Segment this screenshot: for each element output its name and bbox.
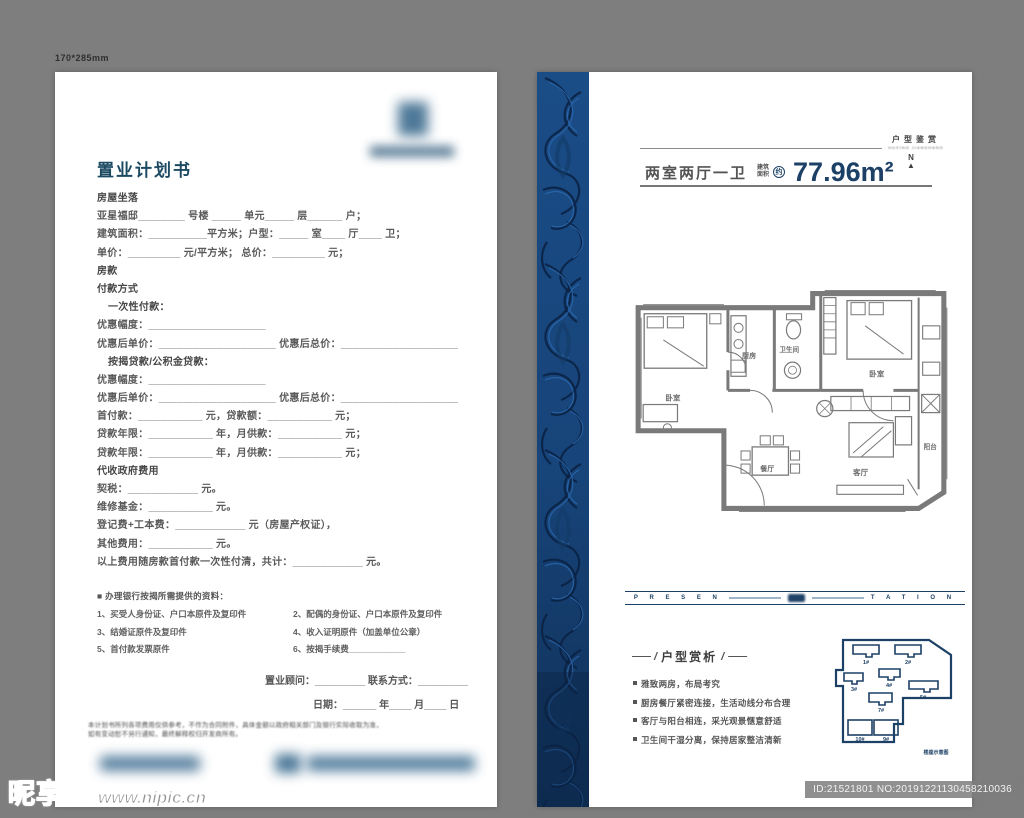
footer-text-blurred bbox=[307, 756, 475, 771]
doc-item: 3、结婚证原件及复印件 bbox=[97, 626, 293, 638]
unit-layout-text: 两室两厅一卫 bbox=[645, 162, 747, 183]
form-line: 付款方式 bbox=[97, 283, 477, 301]
page-right-floorplan: 户型鉴赏 HUXING JIANSHANG 两室两厅一卫 建筑 面积 约 77.… bbox=[537, 72, 972, 807]
date-line: 日期：______ 年____ 月____ 日 bbox=[313, 696, 459, 711]
keyplan-caption: 楼座示意图 bbox=[923, 749, 948, 756]
form-line: 其他费用：___________ 元。 bbox=[97, 538, 477, 556]
form-line: 契税：____________ 元。 bbox=[97, 483, 477, 501]
keyplan-unit-label: 9# bbox=[883, 737, 889, 743]
form-line: 登记费+工本费：____________ 元（房屋产权证）， bbox=[97, 519, 477, 537]
damask-pattern-icon bbox=[537, 72, 589, 807]
keyplan-drawing-icon: 1# 2# 3# 4# 5# 7# 10# 9# 楼座示意图 bbox=[831, 628, 969, 762]
bullet-text: 雅致两房，布局考究 bbox=[641, 678, 720, 690]
form-line: 代收政府费用 bbox=[97, 465, 477, 483]
approx-circle-icon: 约 bbox=[773, 166, 785, 178]
form-line: 单价：_________ 元/平方米； 总价：_________ 元； bbox=[97, 247, 477, 265]
form-line: 首付款：___________ 元，贷款额：___________ 元； bbox=[97, 410, 477, 428]
form-line: 一次性付款： bbox=[97, 301, 477, 319]
area-label-top: 建筑 bbox=[757, 165, 769, 172]
room-label-bedroom-right: 卧室 bbox=[869, 368, 885, 378]
analysis-title: 户型赏析 bbox=[661, 648, 717, 665]
watermark-id-badge: ID:21521801 NO:20191221130458210036 bbox=[805, 781, 1020, 798]
bullet-text: 厨房餐厅紧密连接，生活动线分布合理 bbox=[641, 697, 791, 709]
brand-name-blurred bbox=[370, 146, 454, 157]
form-line: 优惠后单价：____________________ 优惠后总价：_______… bbox=[97, 338, 477, 356]
area-label: 建筑 面积 bbox=[757, 165, 769, 179]
page-title: 置业计划书 bbox=[97, 156, 192, 181]
presentation-band: P R E S E N T A T I O N bbox=[625, 591, 965, 605]
room-label-bedroom-left: 卧室 bbox=[665, 392, 681, 402]
room-label-kitchen: 厨房 bbox=[742, 351, 756, 360]
keyplan-unit-label: 10# bbox=[855, 737, 864, 743]
form-line: 维修基金：___________ 元。 bbox=[97, 501, 477, 519]
bullet-square-icon bbox=[633, 737, 637, 741]
area-label-bottom: 面积 bbox=[757, 172, 769, 179]
form-line: 亚星福邸________ 号楼 _____ 单元_____ 层______ 户； bbox=[97, 210, 477, 228]
area-value: 77.96m² bbox=[793, 157, 894, 188]
form-line: 优惠幅度：____________________ bbox=[97, 374, 477, 392]
size-label: 170*285mm bbox=[55, 53, 109, 63]
floorplan-drawing-icon: 卧室 厨房 卫生间 卧室 餐厅 客厅 阳台 bbox=[623, 277, 961, 525]
disclaimer-line-1: 本计划书所列各项费用仅供参考，不作为合同附件，具体金额以政府相关部门及银行实际收… bbox=[88, 721, 418, 730]
analysis-slash-right: / bbox=[721, 651, 724, 663]
disclaimer-line-2: 如有变动恕不另行通知，最终解释权归开发商所有。 bbox=[88, 730, 418, 739]
analysis-bullet: 客厅与阳台相连，采光观景惬意舒适 bbox=[633, 715, 843, 727]
form-line: 按揭贷款/公积金贷款： bbox=[97, 356, 477, 374]
watermark-site-url: www.nipic.cn bbox=[98, 788, 206, 811]
room-label-dining: 餐厅 bbox=[759, 464, 774, 473]
consultant-line: 置业顾问：_________ 联系方式：_________ bbox=[265, 672, 468, 687]
site-keyplan: 1# 2# 3# 4# 5# 7# 10# 9# 楼座示意图 bbox=[831, 628, 969, 762]
bullet-square-icon bbox=[633, 700, 637, 704]
form-line: 以上费用随房款首付款一次性付清，共计：____________ 元。 bbox=[97, 556, 477, 574]
bullet-square-icon bbox=[633, 718, 637, 722]
bullet-text: 卫生间干湿分离，保持居家整洁清新 bbox=[641, 734, 782, 746]
analysis-slash-left: / bbox=[654, 651, 657, 663]
keyplan-unit-label: 4# bbox=[886, 683, 892, 689]
bullet-square-icon bbox=[633, 681, 637, 685]
compass-north-icon: N ▲ bbox=[903, 154, 919, 170]
room-label-bath: 卫生间 bbox=[779, 345, 799, 354]
analysis-bullet: 卫生间干湿分离，保持居家整洁清新 bbox=[633, 734, 843, 746]
doc-item: 4、收入证明原件（加盖单位公章） bbox=[293, 626, 477, 638]
header-rule-top bbox=[640, 148, 882, 149]
keyplan-unit-label: 1# bbox=[863, 660, 869, 666]
doc-item: 5、首付款发票原件 bbox=[97, 643, 293, 655]
keyplan-unit-label: 3# bbox=[851, 687, 857, 693]
analysis-bullet: 厨房餐厅紧密连接，生活动线分布合理 bbox=[633, 697, 843, 709]
compass-arrow: ▲ bbox=[903, 162, 919, 170]
room-label-balcony: 阳台 bbox=[924, 442, 938, 451]
corner-subtitle: HUXING JIANSHANG bbox=[882, 145, 950, 150]
docs-list: 1、买受人身份证、户口本原件及复印件2、配偶的身份证、户口本原件及复印件3、结婚… bbox=[97, 608, 477, 655]
corner-title: 户型鉴赏 bbox=[882, 134, 950, 145]
damask-strip-decoration bbox=[537, 72, 589, 807]
watermark-site: 昵享网 www.nipic.cn bbox=[8, 772, 206, 811]
doc-item: 1、买受人身份证、户口本原件及复印件 bbox=[97, 608, 293, 620]
disclaimer-text: 本计划书所列各项费用仅供参考，不作为合同附件，具体金额以政府相关部门及银行实际收… bbox=[88, 721, 418, 739]
footer-logo-blurred bbox=[275, 754, 301, 773]
floorplan: 卧室 厨房 卫生间 卧室 餐厅 客厅 阳台 bbox=[623, 277, 961, 525]
analysis-bullets: 雅致两房，布局考究厨房餐厅紧密连接，生活动线分布合理客厅与阳台相连，采光观景惬意… bbox=[633, 678, 843, 752]
page-left-purchase-plan: 置业计划书 房屋坐落亚星福邸________ 号楼 _____ 单元_____ … bbox=[55, 72, 497, 807]
form-line: 房屋坐落 bbox=[97, 192, 477, 210]
header-rule-bottom bbox=[640, 185, 932, 187]
corner-label: 户型鉴赏 HUXING JIANSHANG bbox=[882, 134, 950, 150]
docs-title: ■ 办理银行按揭所需提供的资料： bbox=[97, 590, 228, 602]
form-line: 贷款年限：___________ 年，月供款：___________ 元； bbox=[97, 447, 477, 465]
analysis-dash-right: —— bbox=[728, 651, 746, 662]
band-line-left bbox=[729, 597, 781, 599]
keyplan-unit-label: 7# bbox=[878, 708, 884, 714]
form-line: 优惠幅度：____________________ bbox=[97, 319, 477, 337]
analysis-title-row: —— / 户型赏析 / —— bbox=[632, 648, 746, 665]
form-line: 房款 bbox=[97, 265, 477, 283]
keyplan-unit-label: 5# bbox=[920, 695, 926, 701]
band-logo-blurred bbox=[788, 594, 805, 602]
bullet-text: 客厅与阳台相连，采光观景惬意舒适 bbox=[641, 715, 782, 727]
keyplan-unit-label: 2# bbox=[905, 660, 911, 666]
band-text-left: P R E S E N bbox=[634, 595, 722, 601]
doc-item: 6、按揭手续费____________ bbox=[293, 643, 477, 655]
form-line: 优惠后单价：____________________ 优惠后总价：_______… bbox=[97, 392, 477, 410]
unit-summary-row: 两室两厅一卫 建筑 面积 约 77.96m² bbox=[645, 156, 945, 188]
form-line: 建筑面积：__________平方米；户型：_____ 室____ 厅____ … bbox=[97, 228, 477, 246]
band-line-right bbox=[812, 597, 864, 599]
form-lines: 房屋坐落亚星福邸________ 号楼 _____ 单元_____ 层_____… bbox=[97, 192, 477, 574]
design-canvas: 170*285mm 置业计划书 房屋坐落亚星福邸________ 号楼 ____… bbox=[0, 0, 1024, 818]
form-line: 贷款年限：___________ 年，月供款：___________ 元； bbox=[97, 428, 477, 446]
room-label-living: 客厅 bbox=[852, 467, 869, 477]
brand-logo-blurred bbox=[398, 102, 428, 136]
analysis-bullet: 雅致两房，布局考究 bbox=[633, 678, 843, 690]
contact-text-blurred bbox=[100, 756, 200, 771]
analysis-dash-left: —— bbox=[632, 651, 650, 662]
band-text-right: T A T I O N bbox=[871, 595, 956, 601]
watermark-site-name: 昵享网 bbox=[8, 772, 92, 811]
doc-item: 2、配偶的身份证、户口本原件及复印件 bbox=[293, 608, 477, 620]
